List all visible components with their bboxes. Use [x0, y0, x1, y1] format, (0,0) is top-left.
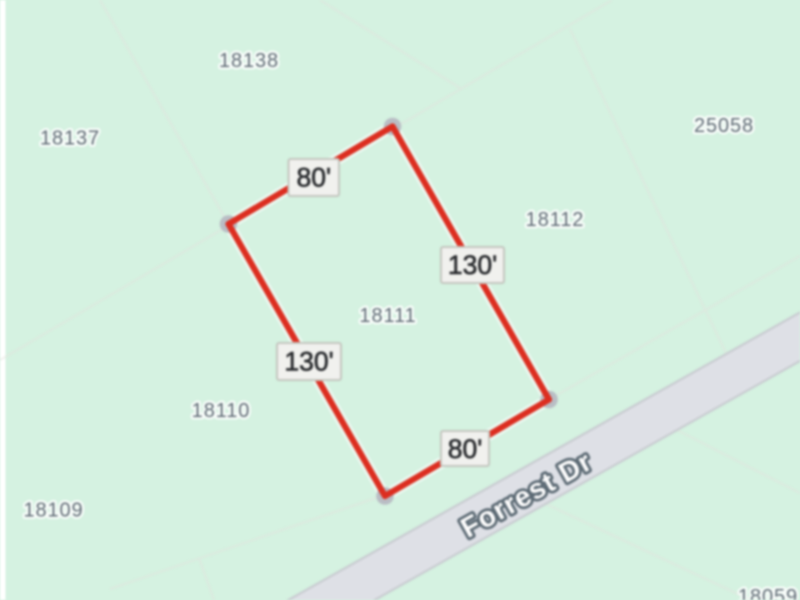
svg-text:18137: 18137 — [40, 128, 100, 150]
svg-text:25058: 25058 — [694, 115, 754, 137]
svg-text:18109: 18109 — [23, 500, 83, 522]
svg-text:18138: 18138 — [219, 50, 279, 72]
svg-text:18110: 18110 — [192, 400, 251, 422]
svg-text:18111: 18111 — [359, 305, 416, 327]
svg-text:18112: 18112 — [526, 209, 585, 231]
svg-text:80': 80' — [448, 434, 483, 464]
svg-text:18059: 18059 — [738, 586, 798, 600]
svg-text:130': 130' — [284, 347, 333, 377]
svg-text:80': 80' — [297, 163, 332, 193]
svg-text:130': 130' — [448, 250, 497, 280]
